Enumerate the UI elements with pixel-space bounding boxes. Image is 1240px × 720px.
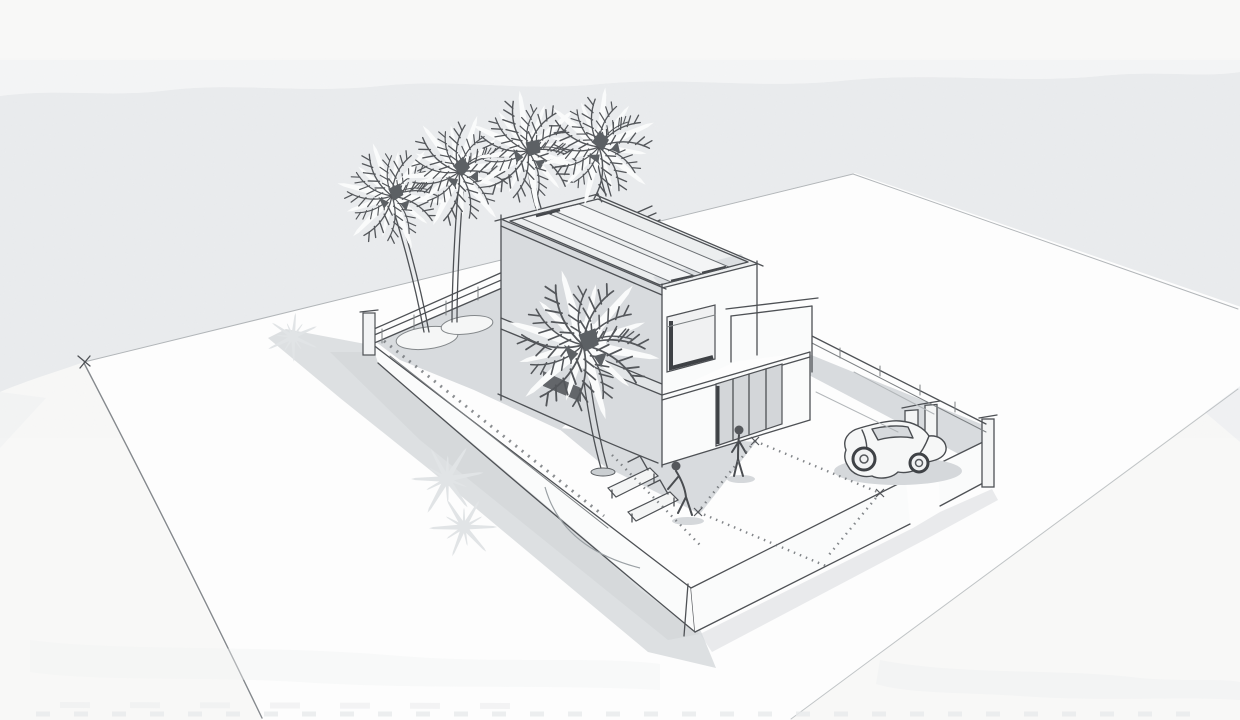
corner-post (982, 419, 994, 487)
car-wheel (853, 448, 875, 470)
figure-shadow (727, 475, 755, 483)
sketch-page: Architectural concept sketch (0, 0, 1240, 720)
car-wheel (910, 454, 928, 472)
corner-post (363, 313, 375, 355)
front-palm-base (591, 468, 615, 476)
architectural-sketch-canvas: Architectural concept sketch (0, 0, 1240, 720)
